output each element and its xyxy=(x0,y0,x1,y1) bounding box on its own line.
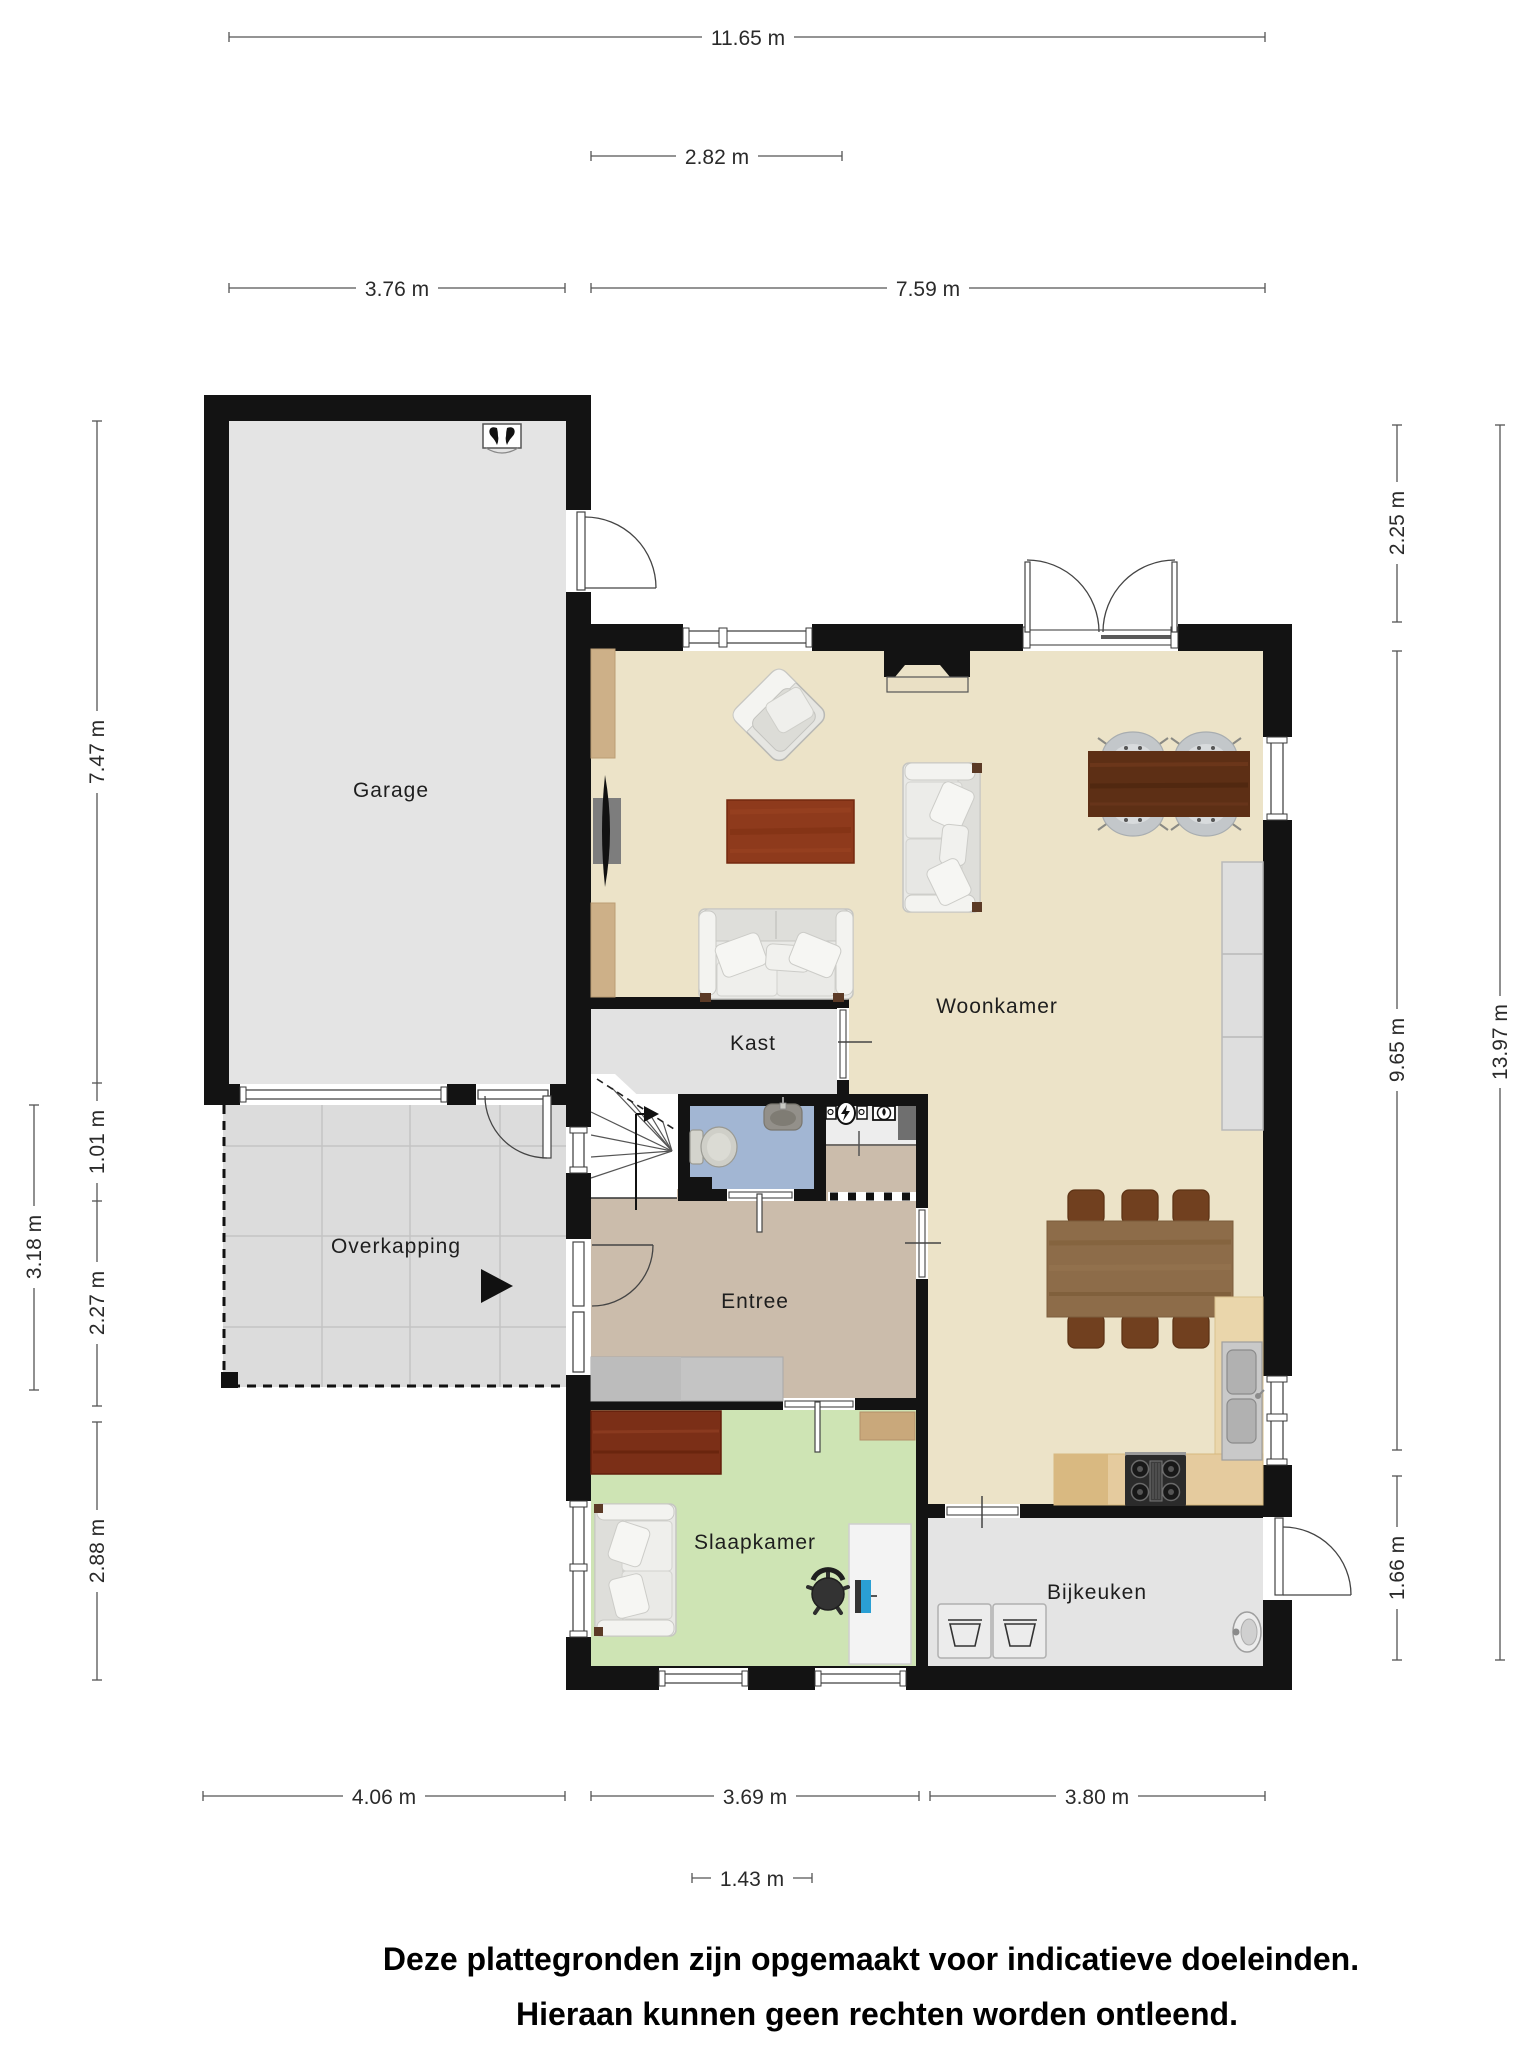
svg-text:1.66 m: 1.66 m xyxy=(1386,1536,1409,1600)
svg-text:Woonkamer: Woonkamer xyxy=(936,995,1058,1018)
svg-text:Slaapkamer: Slaapkamer xyxy=(694,1531,816,1554)
svg-text:3.69 m: 3.69 m xyxy=(723,1786,787,1809)
svg-text:Bijkeuken: Bijkeuken xyxy=(1047,1581,1147,1604)
svg-text:Entree: Entree xyxy=(721,1290,789,1313)
svg-text:1.43 m: 1.43 m xyxy=(720,1868,784,1891)
svg-text:9.65 m: 9.65 m xyxy=(1386,1018,1409,1082)
svg-text:2.25 m: 2.25 m xyxy=(1386,491,1409,555)
svg-text:Hieraan kunnen geen rechten wo: Hieraan kunnen geen rechten worden ontle… xyxy=(516,1996,1238,2032)
svg-text:3.76 m: 3.76 m xyxy=(365,278,429,301)
svg-text:Deze plattegronden zijn opgema: Deze plattegronden zijn opgemaakt voor i… xyxy=(383,1941,1359,1977)
svg-text:Kast: Kast xyxy=(730,1032,776,1055)
svg-text:13.97 m: 13.97 m xyxy=(1489,1004,1512,1080)
svg-text:7.59 m: 7.59 m xyxy=(896,278,960,301)
svg-text:2.82 m: 2.82 m xyxy=(685,146,749,169)
svg-text:7.47 m: 7.47 m xyxy=(86,720,109,784)
svg-text:4.06 m: 4.06 m xyxy=(352,1786,416,1809)
svg-text:Garage: Garage xyxy=(353,779,429,802)
svg-text:3.18 m: 3.18 m xyxy=(23,1215,46,1279)
svg-text:2.27 m: 2.27 m xyxy=(86,1271,109,1335)
svg-text:1.01 m: 1.01 m xyxy=(86,1110,109,1174)
svg-text:11.65 m: 11.65 m xyxy=(711,27,785,50)
svg-text:3.80 m: 3.80 m xyxy=(1065,1786,1129,1809)
svg-text:2.88 m: 2.88 m xyxy=(86,1519,109,1583)
svg-text:Overkapping: Overkapping xyxy=(331,1235,461,1258)
